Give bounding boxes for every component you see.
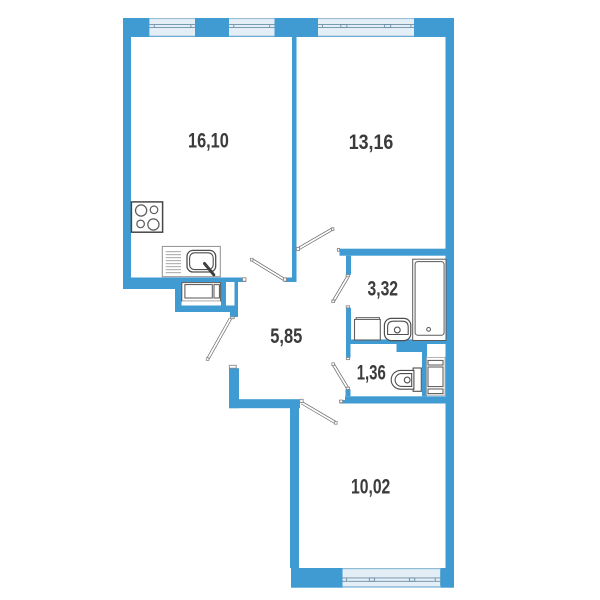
svg-text:5,85: 5,85 <box>270 325 302 348</box>
svg-text:1,36: 1,36 <box>357 362 386 385</box>
svg-text:16,10: 16,10 <box>188 130 229 153</box>
svg-text:13,16: 13,16 <box>349 131 394 154</box>
svg-text:3,32: 3,32 <box>368 278 399 301</box>
svg-text:10,02: 10,02 <box>351 476 390 499</box>
